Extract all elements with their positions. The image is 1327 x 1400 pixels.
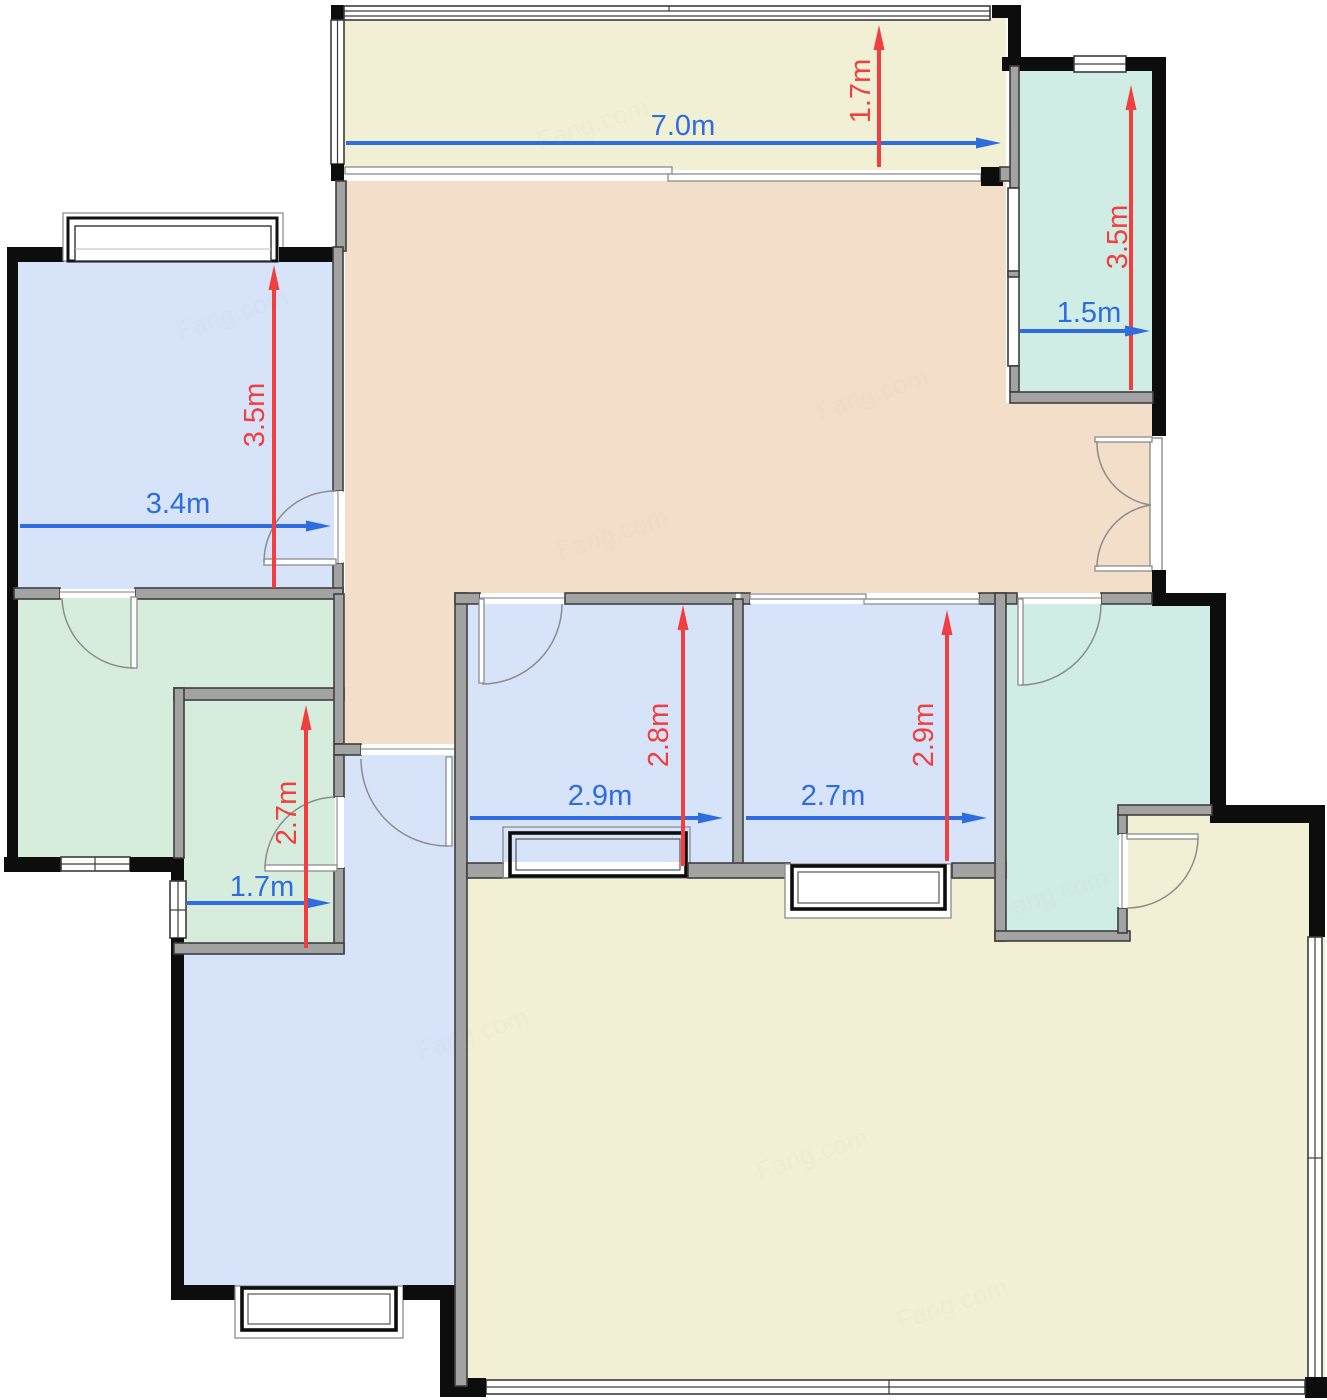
- svg-text:7.0m: 7.0m: [651, 110, 715, 142]
- svg-text:1.7m: 1.7m: [230, 871, 294, 903]
- svg-text:2.8m: 2.8m: [643, 703, 675, 767]
- svg-text:1.7m: 1.7m: [845, 59, 877, 123]
- svg-text:1.5m: 1.5m: [1057, 297, 1121, 329]
- svg-text:2.7m: 2.7m: [271, 781, 303, 845]
- svg-text:2.7m: 2.7m: [801, 780, 865, 812]
- svg-text:2.9m: 2.9m: [908, 703, 940, 767]
- svg-text:3.4m: 3.4m: [146, 488, 210, 520]
- svg-text:3.5m: 3.5m: [239, 383, 271, 447]
- svg-text:2.9m: 2.9m: [568, 780, 632, 812]
